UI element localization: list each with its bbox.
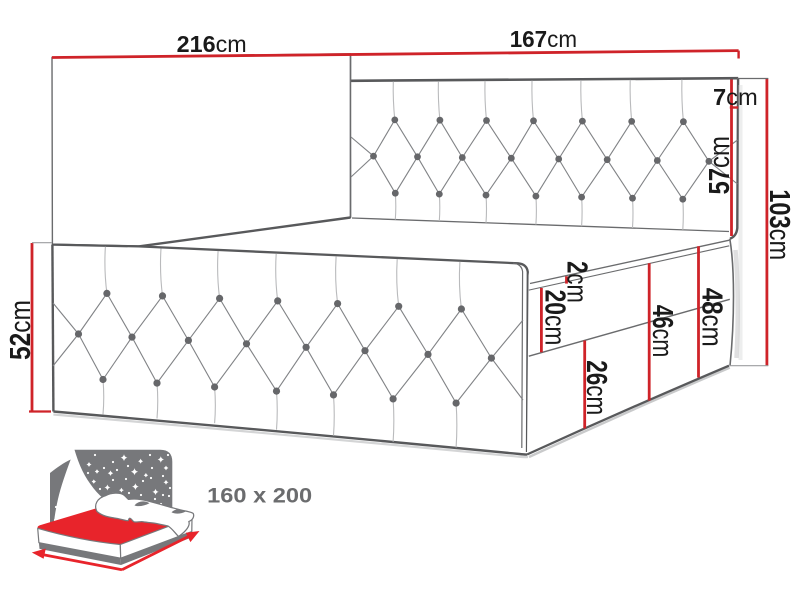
svg-text:7cm: 7cm xyxy=(713,84,758,110)
svg-text:167cm: 167cm xyxy=(510,26,577,52)
svg-text:103cm: 103cm xyxy=(763,189,795,260)
svg-text:57cm: 57cm xyxy=(704,136,736,195)
svg-text:160 x 200: 160 x 200 xyxy=(207,484,312,508)
svg-text:46cm: 46cm xyxy=(646,305,678,358)
svg-text:20cm: 20cm xyxy=(539,290,571,346)
svg-text:48cm: 48cm xyxy=(696,288,728,347)
svg-text:26cm: 26cm xyxy=(580,360,612,415)
svg-text:52cm: 52cm xyxy=(5,300,37,360)
svg-text:216cm: 216cm xyxy=(177,31,247,57)
